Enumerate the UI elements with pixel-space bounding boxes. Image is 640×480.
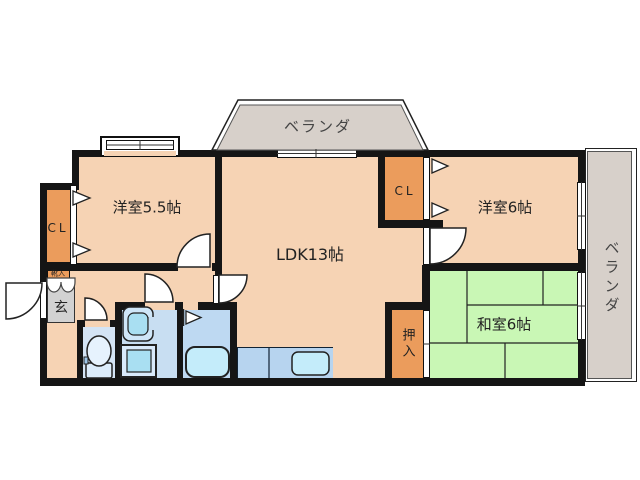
wall-segment [430, 263, 578, 271]
entrance-threshold [40, 282, 47, 318]
label-closet-left: CL [47, 222, 68, 234]
label-western-room-6: 洋室6帖 [478, 201, 533, 216]
floorplan: ベランダ ベランダ 洋室5.5帖 LDK13帖 洋室6帖 和室6帖 CL CL … [0, 0, 640, 480]
label-ldk: LDK13帖 [276, 247, 344, 263]
wall-segment [177, 310, 183, 378]
wall-segment [578, 250, 585, 272]
closet-left-door-strip [70, 185, 77, 265]
wall-segment [230, 302, 237, 378]
wall-segment [47, 263, 178, 271]
japanese-room-window [577, 272, 586, 340]
label-genkan: 玄 [54, 301, 68, 315]
bathroom [183, 310, 230, 378]
wall-segment [385, 302, 430, 310]
wall-segment [115, 302, 145, 310]
wall-segment [385, 310, 392, 378]
door-arc-entrance [6, 283, 42, 319]
ldk-door-leaf [213, 275, 219, 304]
exterior-mask [44, 145, 72, 183]
wall-segment [215, 157, 222, 277]
wall-segment [578, 150, 585, 182]
label-closet-right: CL [394, 185, 415, 197]
bay-window-sill [104, 151, 176, 156]
label-veranda-right: ベランダ [604, 240, 619, 316]
wall-segment [378, 150, 385, 220]
ldk-window [277, 149, 357, 158]
wall-segment [115, 310, 122, 378]
wall-segment [578, 340, 585, 378]
western-room6-door-leaf [423, 227, 430, 265]
wall-segment [175, 302, 183, 310]
wall-segment [40, 318, 47, 386]
wall-segment [180, 150, 277, 157]
bay-window-glass [106, 140, 174, 150]
label-oshiire: 押入 [401, 328, 414, 360]
label-western-room-5-5: 洋室5.5帖 [113, 201, 182, 216]
closet-right-door-strip [423, 157, 430, 220]
wall-segment [77, 320, 83, 378]
wall-segment [40, 378, 585, 386]
toilet-room [83, 327, 115, 378]
label-japanese-room-6: 和室6帖 [477, 318, 532, 333]
washroom [122, 310, 177, 378]
label-veranda-top: ベランダ [284, 120, 352, 135]
wall-segment [355, 150, 585, 157]
wall-segment [378, 220, 443, 228]
wall-segment [40, 190, 47, 282]
oshiire-sliding-door [423, 310, 430, 378]
kitchen-counter [237, 347, 333, 378]
western-room6-window [577, 182, 586, 250]
label-shoe-cabinet: 靴入 [51, 271, 65, 278]
